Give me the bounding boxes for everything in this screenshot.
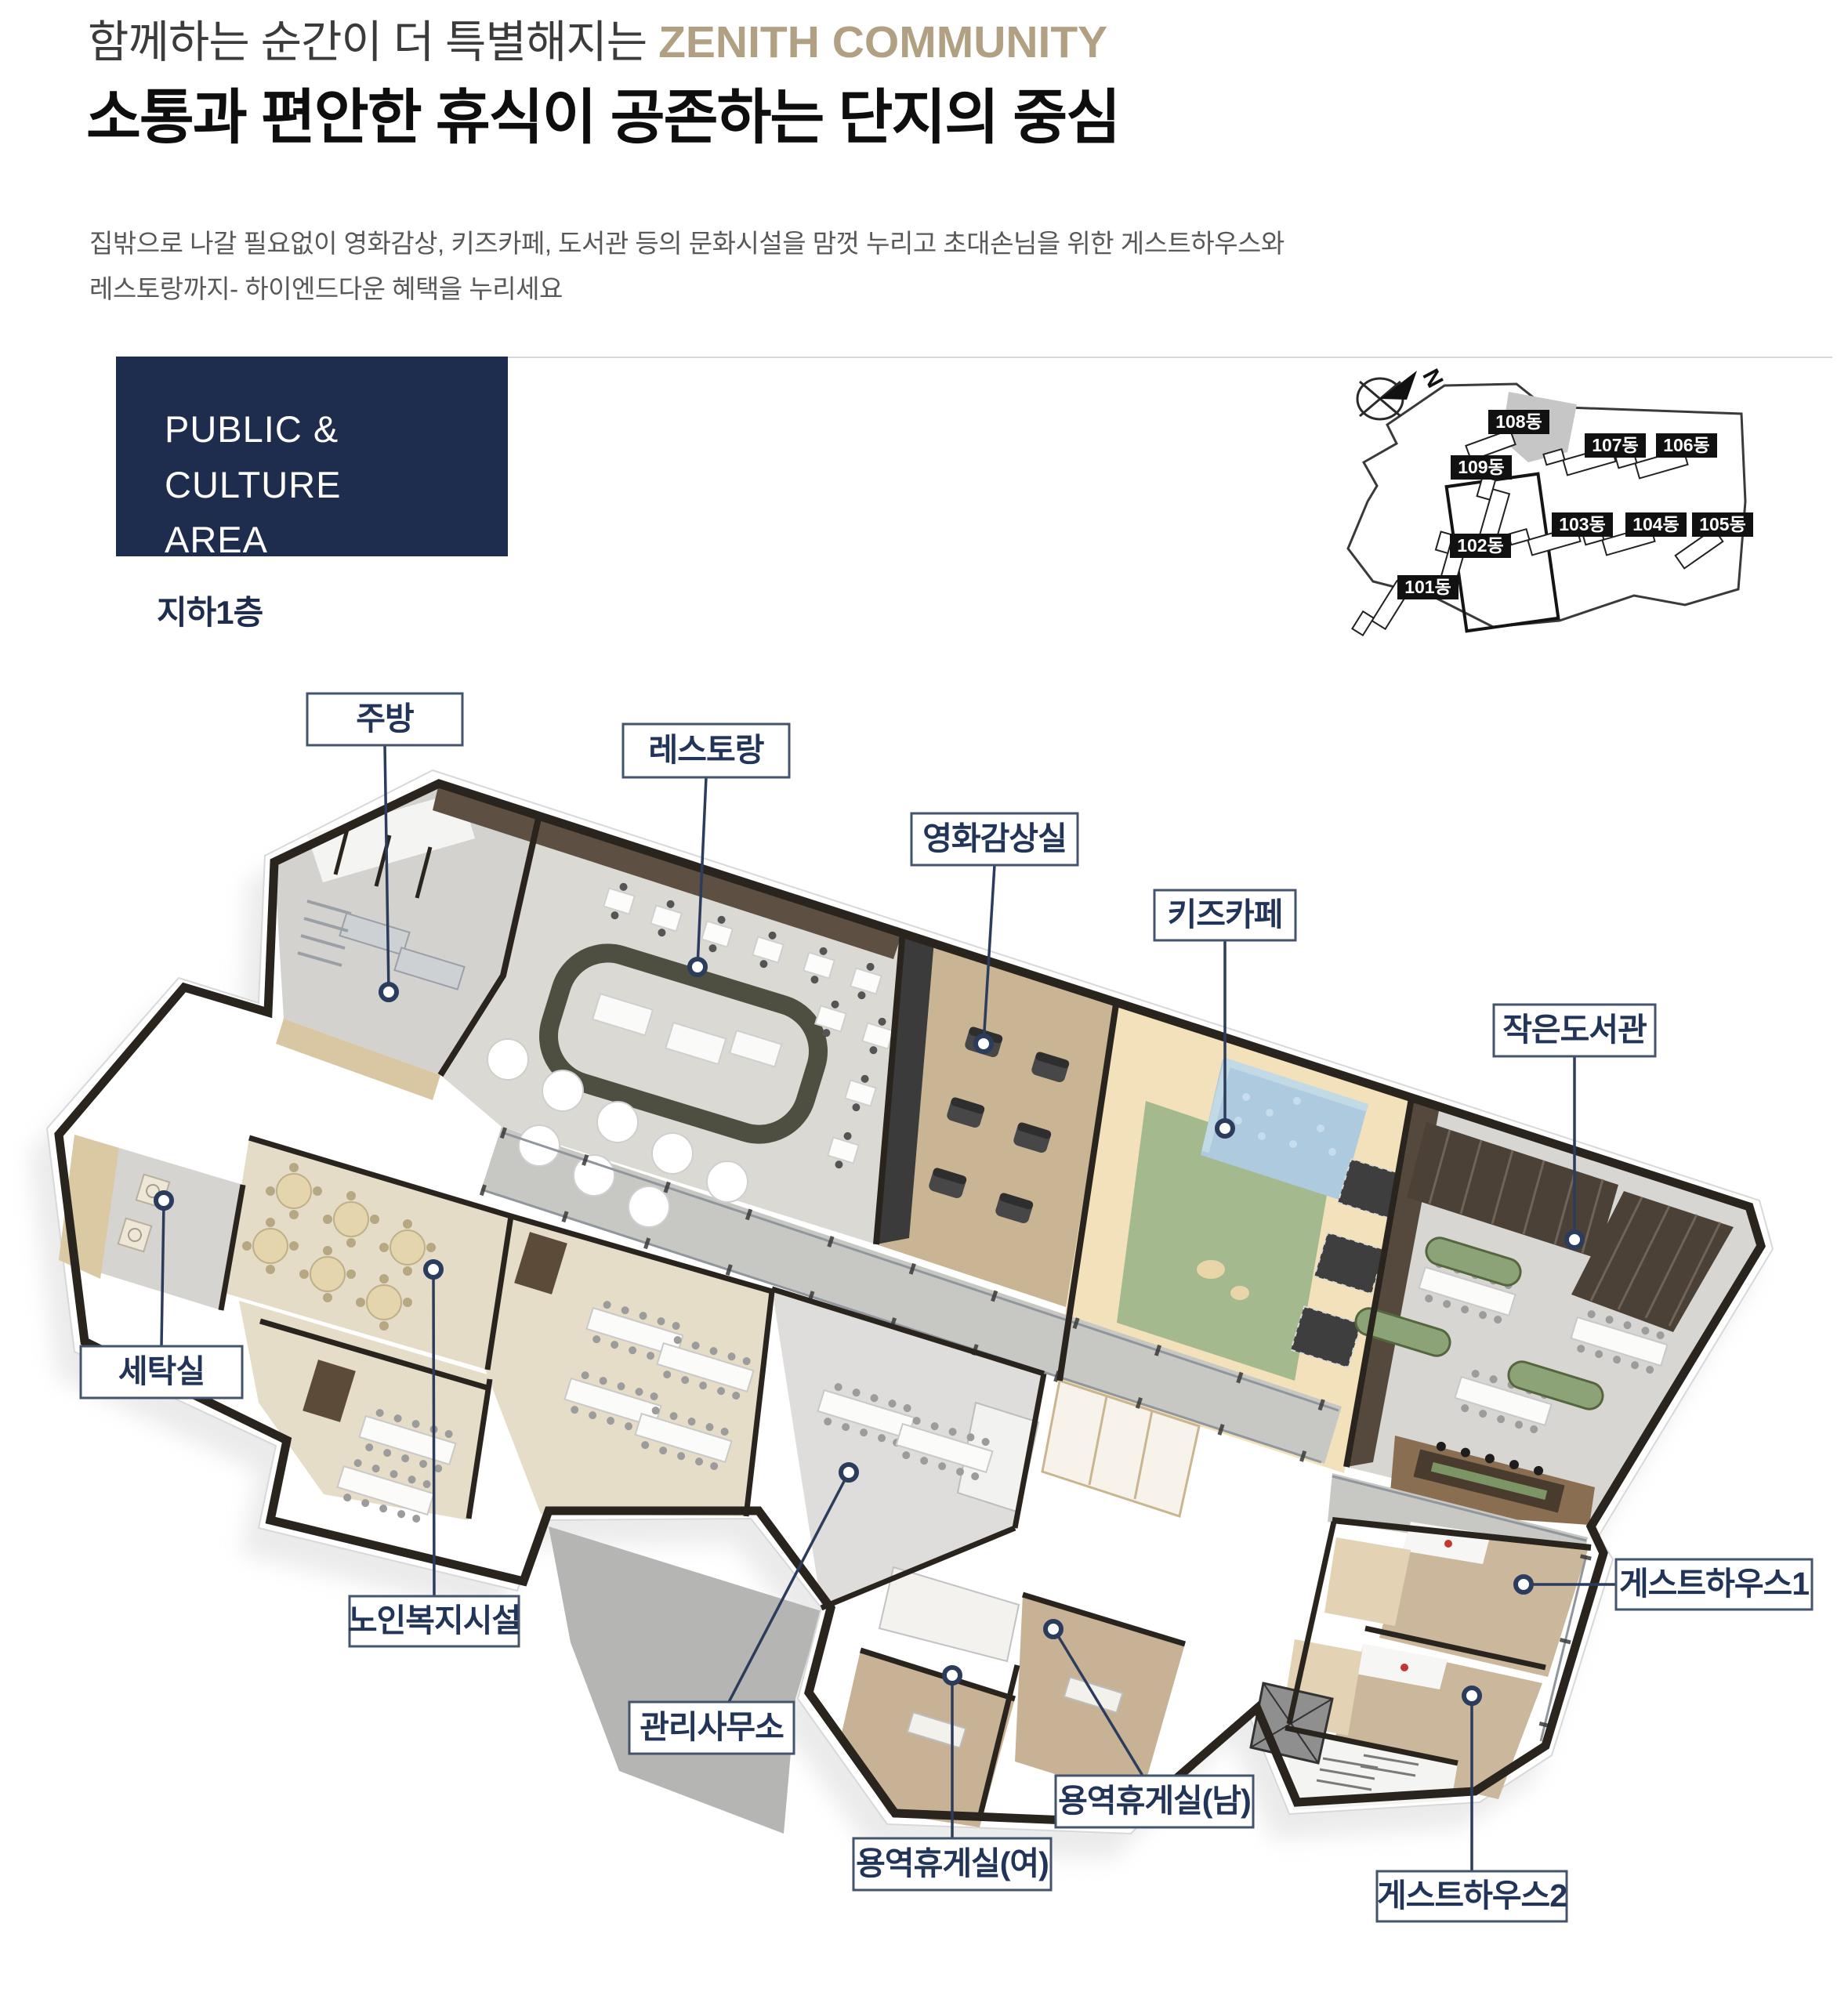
- leader-dot-small-library: [1567, 1232, 1582, 1247]
- label-movie-room-text: 영화감상실: [922, 820, 1067, 856]
- label-laundry-text: 세탁실: [118, 1353, 205, 1389]
- leader-line-senior-welfare: [433, 1271, 434, 1596]
- label-laundry: 세탁실: [81, 1346, 242, 1398]
- label-guesthouse-1: 게스트하우스1: [1616, 1559, 1812, 1610]
- label-movie-room: 영화감상실: [911, 813, 1078, 865]
- leader-dot-service-lounge-men: [1045, 1621, 1061, 1637]
- label-restaurant: 레스토랑: [623, 724, 789, 777]
- label-small-library-text: 작은도서관: [1502, 1012, 1647, 1048]
- leader-dot-guesthouse-2: [1464, 1688, 1480, 1704]
- label-management-office-text: 관리사무소: [640, 1709, 784, 1745]
- label-kids-cafe: 키즈카페: [1154, 890, 1295, 940]
- leader-dot-management-office: [841, 1465, 857, 1480]
- label-kitchen: 주방: [307, 693, 462, 745]
- label-guesthouse-2: 게스트하우스2: [1377, 1871, 1567, 1921]
- label-guesthouse-1-text: 게스트하우스1: [1619, 1566, 1809, 1602]
- leader-dot-laundry: [156, 1193, 172, 1208]
- leader-dot-kitchen: [381, 984, 397, 1000]
- leader-dot-service-lounge-women: [944, 1667, 960, 1683]
- leader-dot-restaurant: [690, 959, 705, 975]
- label-senior-welfare-text: 노인복지시설: [348, 1602, 520, 1638]
- label-restaurant-text: 레스토랑: [649, 732, 764, 768]
- label-senior-welfare: 노인복지시설: [348, 1596, 520, 1646]
- leader-dot-kids-cafe: [1217, 1121, 1233, 1136]
- brochure-page: 함께하는 순간이 더 특별해지는 ZENITH COMMUNITY 소통과 편안…: [0, 0, 1848, 2006]
- label-kitchen-text: 주방: [356, 701, 414, 737]
- label-service-lounge-women: 용역휴게실(여): [853, 1838, 1051, 1890]
- label-guesthouse-2-text: 게스트하우스2: [1377, 1877, 1567, 1914]
- leader-dot-senior-welfare: [426, 1262, 441, 1277]
- label-service-lounge-men-text: 용역휴게실(남): [1058, 1783, 1251, 1819]
- label-service-lounge-men: 용역휴게실(남): [1056, 1776, 1253, 1827]
- leader-dot-movie-room: [976, 1036, 991, 1052]
- label-small-library: 작은도서관: [1494, 1005, 1655, 1056]
- label-service-lounge-women-text: 용역휴게실(여): [856, 1845, 1049, 1881]
- leader-dot-guesthouse-1: [1516, 1577, 1531, 1592]
- label-management-office: 관리사무소: [629, 1702, 794, 1754]
- label-kids-cafe-text: 키즈카페: [1168, 896, 1283, 932]
- floorplan-rendering: 주방 레스토랑 영화감상실 키즈카페 작은도서관 세탁실 노인복지시설 관리사무…: [0, 0, 1848, 2006]
